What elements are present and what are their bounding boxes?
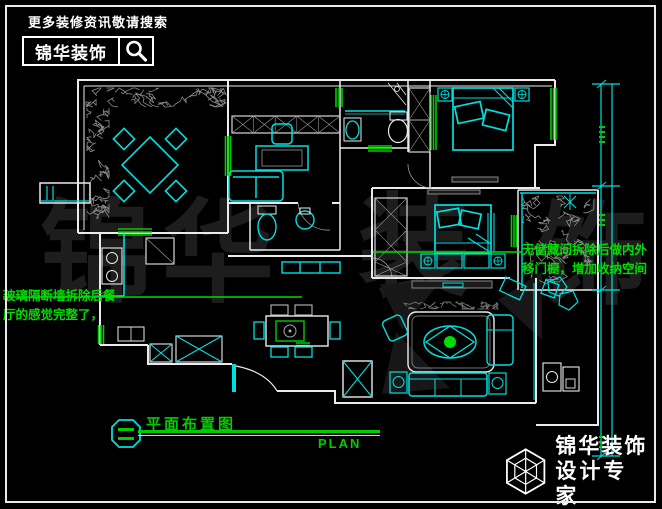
balcony-plants-top xyxy=(86,88,226,107)
stove xyxy=(102,248,122,284)
cad-floorplan-image: 锦 华 装 饰 xyxy=(0,0,662,509)
bathroom-top xyxy=(344,83,408,143)
door-arcs xyxy=(298,164,432,278)
bedroom-top-right xyxy=(438,88,529,182)
brand-name: 锦华装饰 xyxy=(24,38,120,64)
annotation-right: 无储藏间拆除后做内外 移门橱，增加收纳空间 xyxy=(522,241,647,279)
annotation-left: 玻璃隔断墙拆除后餐 厅的感觉完整了， xyxy=(3,287,116,325)
title-underline xyxy=(138,430,380,433)
logo-tagline: 设计专家 xyxy=(555,459,650,509)
ac-platform xyxy=(40,186,90,201)
hall-sideboard xyxy=(282,262,340,273)
dining-set xyxy=(254,305,340,357)
entry-door xyxy=(232,364,277,392)
entry-cabinets xyxy=(150,336,222,362)
search-tagline: 更多装修资讯敬请搜索 xyxy=(28,12,168,31)
annotation-right-line1: 无储藏间拆除后做内外 xyxy=(522,241,647,260)
company-logo-block: 锦华装饰 设计专家 WWW.JS-JINHUA.COM xyxy=(502,434,650,509)
annotation-left-line1: 玻璃隔断墙拆除后餐 xyxy=(3,287,116,306)
cube-logo-icon xyxy=(502,446,549,498)
annotation-right-line2: 移门橱，增加收纳空间 xyxy=(522,260,647,279)
hall-wardrobe xyxy=(409,88,430,152)
washer xyxy=(543,363,561,391)
plant xyxy=(444,336,456,348)
brand-search-box: 锦华装饰 xyxy=(22,36,154,66)
logo-brand: 锦华装饰 xyxy=(555,434,650,459)
balcony-dining-set xyxy=(113,128,186,201)
chaise xyxy=(487,315,513,365)
tv-board xyxy=(428,190,480,194)
section-symbol xyxy=(112,420,140,447)
bathroom-mid xyxy=(258,206,314,240)
annotation-left-line2: 厅的感觉完整了， xyxy=(3,306,116,325)
study-room xyxy=(229,116,340,201)
plan-subtitle: PLAN xyxy=(318,436,361,451)
bed xyxy=(435,205,491,253)
magnifier-icon xyxy=(120,38,152,64)
search-banner: 更多装修资讯敬请搜索 锦华装饰 xyxy=(22,12,168,66)
dimension-text-marks xyxy=(599,126,605,448)
master-bedroom xyxy=(375,190,505,276)
tv-board xyxy=(452,177,498,182)
